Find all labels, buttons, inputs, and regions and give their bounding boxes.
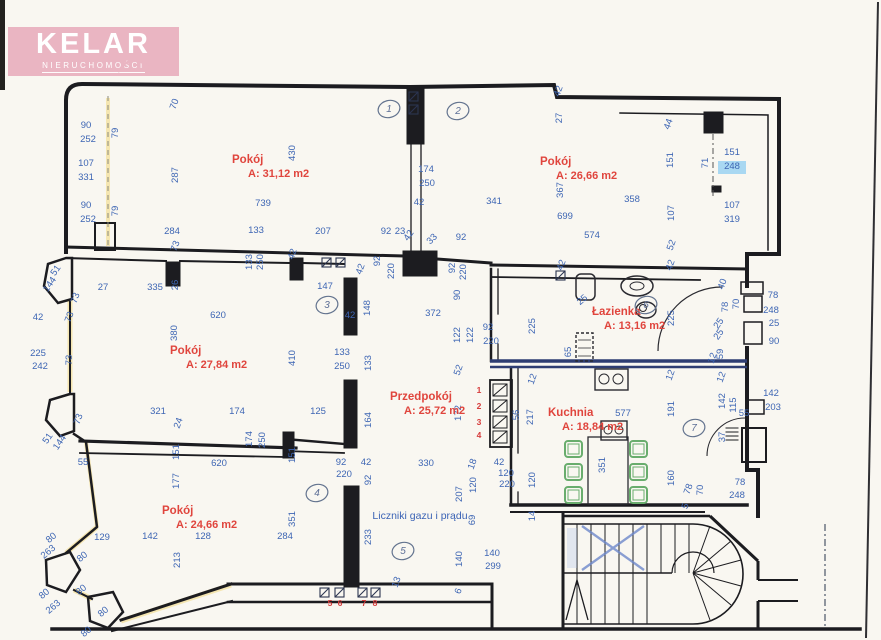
dimension-label: 125: [310, 406, 326, 417]
scanned-floor-plan-page: KELAR NIERUCHOMOŚCI: [0, 0, 881, 640]
room-area-label: A: 25,72 m2: [404, 405, 465, 417]
circled-mark: 5: [400, 546, 406, 557]
dimension-label: 120: [468, 477, 479, 493]
dimension-label: 225: [666, 310, 677, 326]
dimension-label: 699: [557, 211, 573, 222]
dimension-label: 65: [563, 347, 574, 358]
dimension-label: 250: [255, 254, 266, 270]
dimension-label: 174: [244, 431, 255, 447]
dimension-label: 92: [447, 263, 458, 274]
dimension-label: 92: [483, 322, 494, 333]
dimension-label: 248: [729, 490, 745, 501]
dimension-label: 331: [78, 172, 94, 183]
dimension-label: 73: [64, 355, 75, 366]
dimension-label: 25: [711, 327, 726, 342]
dimension-label: 55: [739, 408, 750, 419]
chair-seat: [568, 490, 579, 500]
logo-subtitle: NIERUCHOMOŚCI: [42, 61, 145, 73]
dimension-label: 133: [244, 254, 255, 270]
dimension-label: 129: [94, 532, 110, 543]
dimension-label: 372: [425, 308, 441, 319]
dimension-label: 107: [666, 205, 677, 221]
circled-mark: 1: [386, 104, 392, 115]
meter-number: 7: [362, 598, 367, 608]
meter-number: 5: [328, 598, 333, 608]
circled-mark: 4: [314, 488, 320, 499]
room-area-label: A: 26,66 m2: [556, 170, 617, 182]
dimension-label: 42: [354, 262, 368, 276]
dimension-label: 18: [466, 457, 480, 471]
dimension-label: 79: [110, 206, 121, 217]
dimension-label: 321: [150, 406, 166, 417]
room-name-label: Przedpokój: [390, 391, 452, 403]
dimension-label: 42: [345, 310, 356, 321]
dimension-label: 620: [211, 458, 227, 469]
dimension-label: 73: [63, 310, 77, 324]
dimension-label: 33: [425, 232, 440, 247]
logo-brand: KELAR: [36, 30, 151, 59]
dimension-label: 133: [363, 355, 374, 371]
dimension-label: 12: [526, 372, 540, 386]
dimension-label: 250: [419, 178, 435, 189]
dimension-label: 233: [363, 529, 374, 545]
dimension-label: 42: [33, 312, 44, 323]
window-symbol-diagonal: [358, 588, 367, 597]
dimension-label: 90: [769, 336, 780, 347]
dimension-label: 133: [334, 347, 350, 358]
dimension-label: 174: [418, 164, 434, 175]
chair-seat: [633, 444, 644, 454]
dimension-label: 430: [287, 145, 298, 161]
washer: [576, 333, 593, 361]
circled-mark: 6: [643, 300, 649, 311]
dimension-label: 252: [80, 214, 96, 225]
dimension-label: 27: [554, 113, 565, 124]
dimension-label: 367: [555, 182, 566, 198]
dimension-label: 252: [80, 134, 96, 145]
meter-number: 2: [477, 401, 482, 411]
dimension-label: 13: [390, 575, 404, 589]
dimension-label: 52: [452, 363, 466, 377]
dimension-label: 52: [665, 238, 679, 252]
dimension-label: 79: [110, 128, 121, 139]
kitchen-table: [588, 437, 628, 504]
dimension-label: 90: [81, 120, 92, 131]
note-label: Liczniki gazu i prądu: [372, 510, 467, 522]
room-name-label: Kuchnia: [548, 407, 594, 419]
dimension-label: 335: [147, 282, 163, 293]
dimension-label: 140: [484, 548, 500, 559]
dimension-label: 5: [680, 502, 692, 511]
room-name-label: Pokój: [170, 345, 201, 357]
room-labels: PokójA: 31,12 m2PokójA: 26,66 m2PokójA: …: [162, 154, 665, 531]
dimension-label: 191: [666, 401, 677, 417]
dimension-label: 351: [287, 511, 298, 527]
window-symbol-diagonal: [371, 588, 380, 597]
room-area-label: A: 31,12 m2: [248, 168, 309, 180]
room-area-label: A: 18,84 m2: [562, 421, 623, 433]
dimension-label: 80: [96, 604, 111, 619]
dimension-label: 144: [51, 433, 69, 452]
dimension-label: 107: [78, 158, 94, 169]
floor-plan-drawing: 9025210733190252797970287430739284731332…: [0, 0, 881, 640]
dimension-label: 115: [728, 397, 739, 412]
dimension-label: 128: [195, 531, 211, 542]
dimension-label: 73: [72, 412, 86, 426]
dimension-label: 299: [485, 561, 501, 572]
dimension-label: 151: [287, 447, 298, 463]
dimension-label: 263: [39, 543, 58, 562]
note-label-group: Liczniki gazu i prądu: [372, 510, 467, 522]
dimension-label: 207: [454, 486, 465, 502]
dimension-label: 341: [486, 196, 502, 207]
dimension-label: 242: [32, 361, 48, 372]
circled-mark: 7: [691, 423, 697, 434]
dimension-label: 151: [171, 444, 182, 460]
dimension-label: 92: [336, 457, 347, 468]
dimension-label: 12: [664, 368, 678, 382]
chair-seat: [633, 490, 644, 500]
dimension-label: 147: [317, 281, 333, 292]
room-name-label: Pokój: [162, 505, 193, 517]
dimension-label: 574: [584, 230, 600, 241]
dimension-label: 44: [662, 117, 676, 131]
dimension-label: 220: [386, 263, 397, 279]
meter-cabinet: [490, 380, 512, 447]
dimension-label: 24: [172, 416, 186, 430]
meter-number: 8: [373, 598, 378, 608]
meter-number: 3: [477, 417, 482, 427]
dimension-label: 92: [363, 475, 374, 486]
room-name-label: Pokój: [540, 156, 571, 168]
dimension-label: 225: [527, 318, 538, 334]
room-area-label: A: 24,66 m2: [176, 519, 237, 531]
dimension-label: 248: [763, 305, 779, 316]
dimension-label: 213: [172, 552, 183, 568]
dimension-label: 142: [763, 388, 779, 399]
dimension-label: 220: [458, 264, 469, 280]
dimension-label: 319: [724, 214, 740, 225]
dimension-label: 42: [361, 457, 372, 468]
dimension-label: 151: [724, 147, 740, 158]
dimension-label: 42: [494, 457, 505, 468]
window-symbol-diagonal: [335, 588, 344, 597]
dimension-label: 577: [615, 408, 631, 419]
dimension-label: 78: [682, 482, 696, 496]
chair-seat: [633, 467, 644, 477]
dimension-label: 174: [229, 406, 245, 417]
dimension-label: 140: [454, 551, 465, 567]
dimension-label: 220: [336, 469, 352, 480]
dimension-label: 80: [79, 624, 94, 639]
dimension-label: 90: [81, 200, 92, 211]
dimension-label: 203: [765, 402, 781, 413]
chair-seat: [568, 444, 579, 454]
dimension-label: 248: [724, 161, 740, 172]
page-edge-line: [866, 2, 878, 638]
dimension-label: 92: [381, 226, 392, 237]
dimension-label: 151: [665, 152, 676, 168]
dimension-label: 71: [700, 158, 711, 169]
dimension-label: 620: [210, 310, 226, 321]
dimension-label: 56: [511, 410, 522, 421]
room-area-label: A: 13,16 m2: [604, 320, 665, 332]
dimension-label: 220: [499, 479, 515, 490]
dimension-label: 410: [287, 350, 298, 366]
dimension-label: 358: [624, 194, 640, 205]
dimension-label: 287: [170, 167, 181, 183]
window-symbol-diagonal: [320, 588, 329, 597]
meter-number: 4: [477, 430, 482, 440]
dimension-label: 164: [363, 412, 374, 428]
dimension-label: 42: [555, 258, 569, 272]
circled-mark: 3: [324, 300, 330, 311]
dimension-label: 14: [527, 511, 538, 522]
scan-edge-bar: [0, 0, 5, 90]
dimension-label: 26: [170, 280, 181, 291]
dimension-label: 69: [467, 515, 478, 526]
dimension-label: 70: [731, 299, 742, 310]
dimension-label: 380: [169, 325, 180, 341]
dimension-label: 107: [724, 200, 740, 211]
chair-seat: [568, 467, 579, 477]
dimension-label: 250: [257, 432, 268, 448]
dimension-label: 263: [44, 598, 63, 617]
meter-number: 6: [338, 598, 343, 608]
dimension-label: 250: [334, 361, 350, 372]
room-area-label: A: 27,84 m2: [186, 359, 247, 371]
dimension-label: 78: [768, 290, 779, 301]
dimension-label: 27: [98, 282, 109, 293]
dimension-label: 90: [452, 290, 463, 301]
dimension-label: 78: [735, 477, 746, 488]
dimension-label: 225: [30, 348, 46, 359]
dimension-label: 70: [168, 97, 182, 111]
dimension-label: 55: [78, 457, 89, 468]
dimension-label: 177: [171, 473, 182, 489]
dimension-label: 148: [362, 300, 373, 316]
dimension-label: 330: [418, 458, 434, 469]
room-name-label: Łazienka: [592, 306, 641, 318]
dimension-label: 78: [720, 302, 731, 313]
dimension-label: 133: [248, 225, 264, 236]
dimension-label: 122: [465, 327, 476, 343]
room-name-label: Pokój: [232, 154, 263, 166]
meter-number: 1: [477, 385, 482, 395]
dimension-label: 80: [37, 586, 52, 601]
dimension-label: 122: [452, 327, 463, 343]
dimension-label: 142: [142, 531, 158, 542]
dimension-label: 37: [717, 432, 728, 443]
dimension-label: 70: [695, 485, 706, 496]
dimension-label: 92: [456, 232, 467, 243]
dimension-label: 160: [666, 470, 677, 486]
circled-mark: 2: [454, 106, 461, 117]
dimension-label: 73: [69, 291, 83, 305]
dimension-label: 120: [498, 468, 514, 479]
kelar-logo: KELAR NIERUCHOMOŚCI: [8, 27, 179, 76]
dimension-label: 12: [715, 370, 729, 384]
dimension-label: 142: [717, 393, 728, 409]
staircase: [563, 512, 798, 629]
dimension-label: 739: [255, 198, 271, 209]
dimension-label: 120: [527, 472, 538, 488]
dimension-label: 92: [372, 256, 383, 267]
dimension-label: 207: [315, 226, 331, 237]
dimension-label: 220: [483, 336, 499, 347]
dimension-label: 217: [525, 409, 536, 425]
dimension-label: 25: [575, 292, 590, 307]
window-symbol-diagonal: [336, 258, 345, 267]
dimension-label: 42: [414, 197, 425, 208]
dimension-label: 6: [453, 587, 465, 596]
dimension-label: 40: [716, 277, 730, 291]
dimension-label: 284: [277, 531, 293, 542]
dimension-label: 42: [664, 258, 678, 272]
dimension-label: 25: [769, 318, 780, 329]
dimension-label: 284: [164, 226, 180, 237]
dimension-label: 351: [597, 457, 608, 473]
